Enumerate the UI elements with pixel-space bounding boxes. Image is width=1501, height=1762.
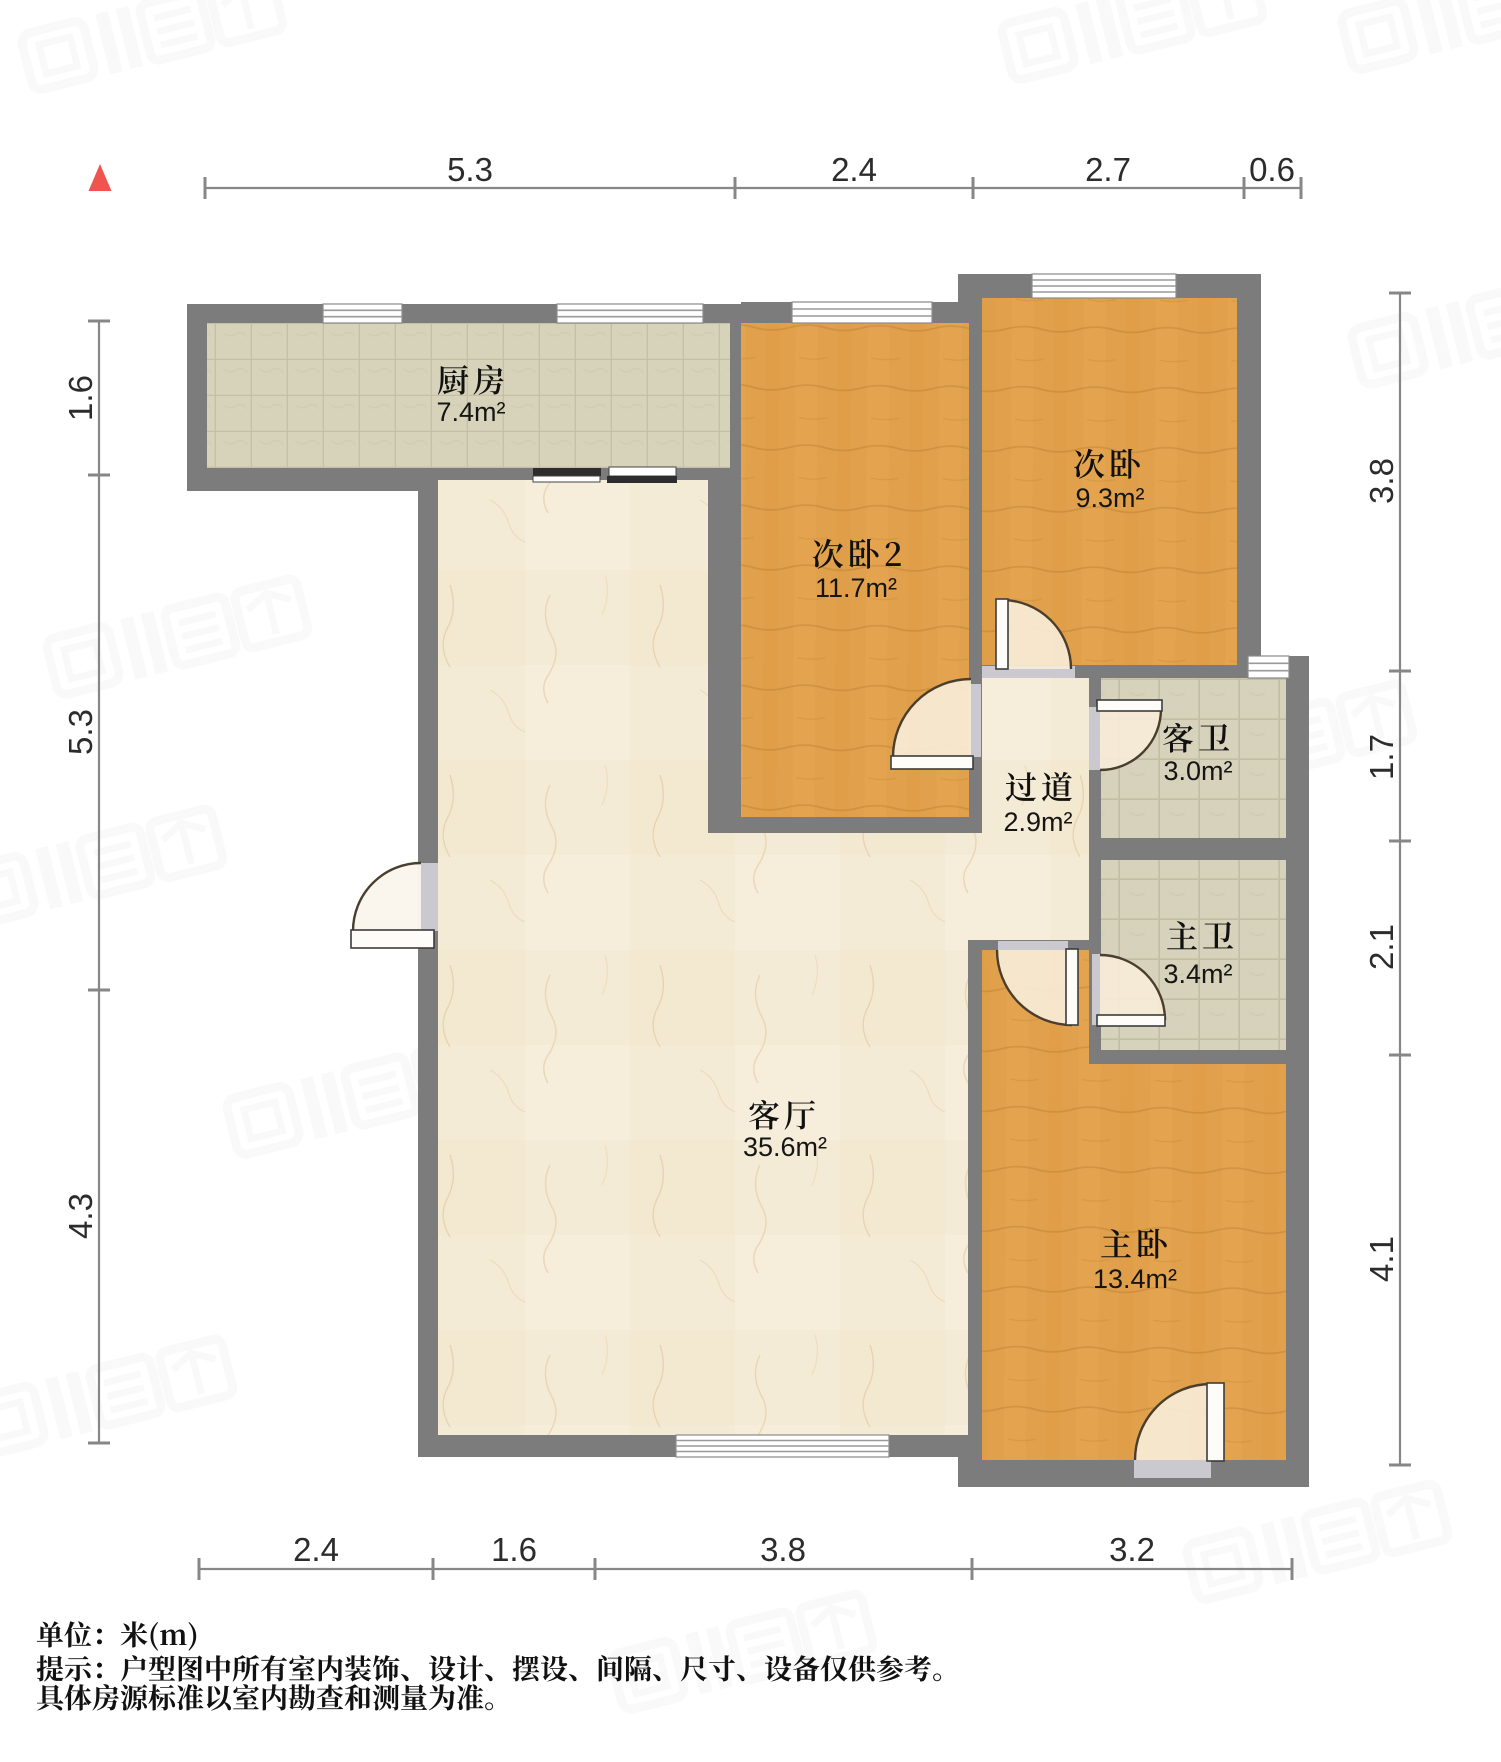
svg-text:11.7m²: 11.7m²	[815, 573, 897, 603]
svg-text:4.1: 4.1	[1363, 1236, 1400, 1282]
svg-text:1.7: 1.7	[1363, 734, 1400, 780]
svg-text:3.8: 3.8	[1363, 458, 1400, 504]
svg-text:1.6: 1.6	[491, 1531, 537, 1568]
svg-text:3.2: 3.2	[1109, 1531, 1155, 1568]
svg-text:4.3: 4.3	[62, 1193, 99, 1239]
svg-text:7.4m²: 7.4m²	[436, 397, 505, 427]
svg-text:13.4m²: 13.4m²	[1093, 1264, 1177, 1294]
svg-text:2.4: 2.4	[831, 151, 877, 188]
svg-text:1.6: 1.6	[62, 375, 99, 421]
svg-text:9.3m²: 9.3m²	[1075, 483, 1144, 513]
svg-text:2.9m²: 2.9m²	[1003, 807, 1072, 837]
svg-text:0.6: 0.6	[1249, 151, 1295, 188]
svg-text:3.0m²: 3.0m²	[1163, 756, 1232, 786]
svg-text:3.4m²: 3.4m²	[1163, 959, 1232, 989]
svg-text:2.1: 2.1	[1363, 924, 1400, 970]
svg-text:5.3: 5.3	[62, 709, 99, 755]
svg-text:35.6m²: 35.6m²	[743, 1132, 827, 1162]
svg-text:2.7: 2.7	[1085, 151, 1131, 188]
svg-text:5.3: 5.3	[447, 151, 493, 188]
svg-text:2.4: 2.4	[293, 1531, 339, 1568]
svg-text:3.8: 3.8	[760, 1531, 806, 1568]
